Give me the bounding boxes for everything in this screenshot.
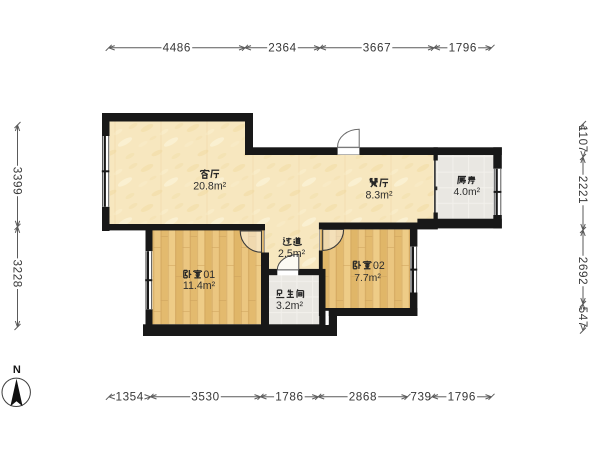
svg-text:547: 547	[576, 307, 589, 328]
svg-text:1786: 1786	[275, 391, 303, 404]
svg-text:N: N	[13, 364, 21, 376]
svg-text:2221: 2221	[576, 176, 589, 204]
svg-text:1796: 1796	[448, 391, 476, 404]
svg-text:2364: 2364	[268, 42, 296, 55]
svg-text:2.5m²: 2.5m²	[278, 248, 306, 260]
svg-text:4.0m²: 4.0m²	[454, 187, 481, 198]
svg-text:3530: 3530	[191, 391, 219, 404]
svg-text:11.4m²: 11.4m²	[183, 280, 216, 292]
svg-text:8.3m²: 8.3m²	[365, 190, 393, 202]
svg-text:20.8m²: 20.8m²	[193, 181, 226, 193]
svg-text:2692: 2692	[576, 257, 589, 285]
svg-text:1107: 1107	[576, 125, 589, 153]
svg-text:3667: 3667	[363, 42, 391, 55]
svg-text:2868: 2868	[349, 391, 377, 404]
svg-text:7.7m²: 7.7m²	[354, 273, 381, 284]
svg-text:3.2m²: 3.2m²	[276, 300, 304, 312]
svg-text:3228: 3228	[10, 259, 23, 287]
svg-text:4486: 4486	[163, 42, 191, 55]
svg-text:1796: 1796	[449, 42, 477, 55]
svg-text:1354: 1354	[115, 391, 143, 404]
svg-text:3399: 3399	[10, 167, 23, 195]
svg-text:739: 739	[410, 391, 431, 404]
svg-text:02: 02	[373, 260, 385, 272]
